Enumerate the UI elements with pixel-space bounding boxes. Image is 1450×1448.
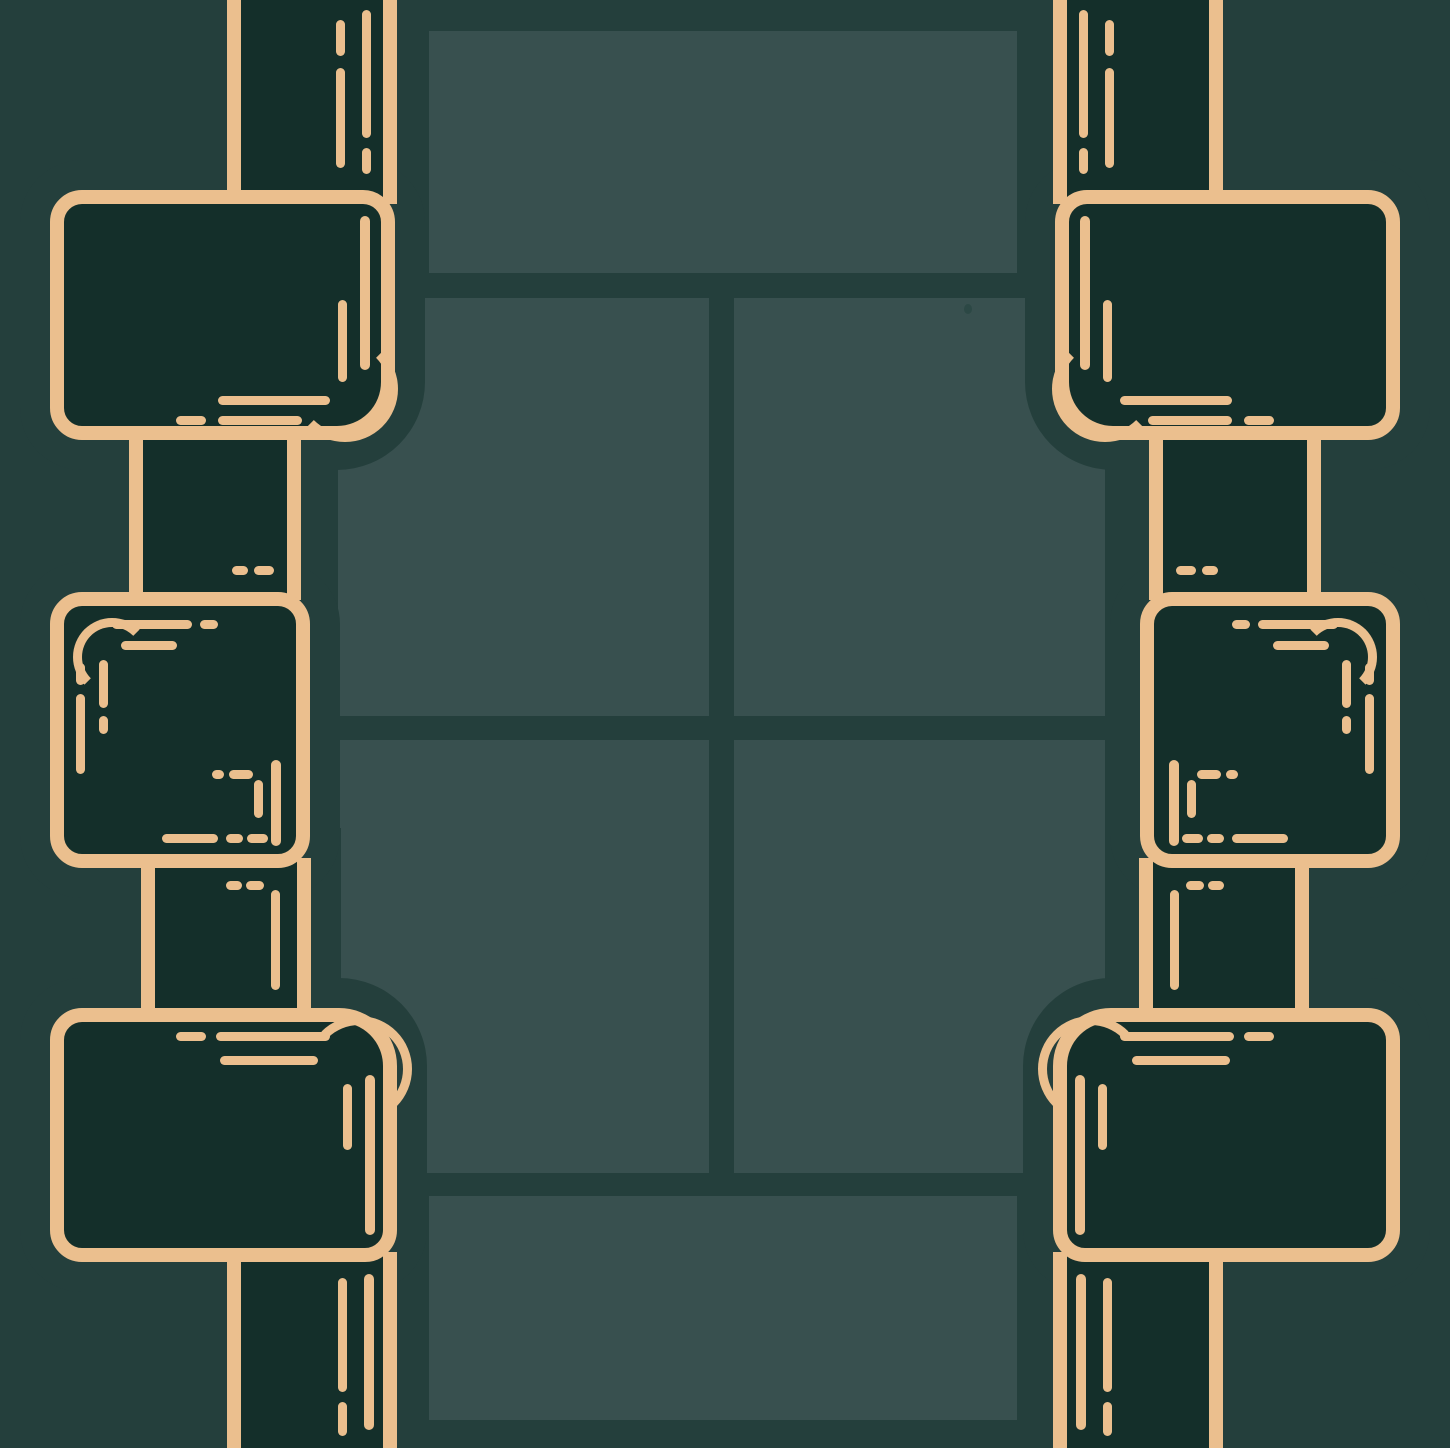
shine-dash xyxy=(1273,641,1329,650)
shine-dash xyxy=(1207,834,1224,843)
shine-dash xyxy=(1226,770,1238,779)
shine-dash xyxy=(1187,780,1196,818)
shine-dash xyxy=(99,716,108,734)
shine-dash xyxy=(338,1278,347,1392)
shine-dash xyxy=(226,834,243,843)
shine-dash xyxy=(365,1075,375,1235)
shine-dash xyxy=(176,1032,206,1041)
shine-dash xyxy=(1182,834,1203,843)
shine-dash xyxy=(1079,148,1088,174)
shine-dash xyxy=(216,1032,330,1041)
shine-dash xyxy=(1105,20,1114,56)
shine-dash xyxy=(1170,890,1179,990)
shine-dash xyxy=(176,416,206,425)
shine-dash xyxy=(1075,1075,1085,1235)
shine-dash xyxy=(246,881,264,890)
shine-arc xyxy=(73,618,151,696)
shine-dash xyxy=(336,68,345,168)
shine-dash xyxy=(1103,1278,1112,1392)
shine-dash xyxy=(229,770,253,779)
shine-dash xyxy=(1202,566,1218,575)
shine-dash xyxy=(1197,770,1221,779)
shine-dash xyxy=(1186,881,1204,890)
shine-dash xyxy=(1098,1084,1107,1150)
shine-dash xyxy=(362,10,371,138)
shine-dash xyxy=(1105,68,1114,168)
shine-dash xyxy=(362,148,371,174)
shine-arc xyxy=(1299,618,1377,696)
shine-dash xyxy=(212,770,224,779)
shine-dash xyxy=(76,663,85,685)
shine-arc xyxy=(1038,1016,1144,1122)
connector-strip-second xyxy=(129,430,301,600)
shine-dash xyxy=(1365,663,1374,685)
shine-dash xyxy=(218,416,302,425)
shine-arc xyxy=(1052,336,1158,442)
shine-dash xyxy=(1342,660,1351,708)
shine-dash xyxy=(112,620,192,629)
shine-dash xyxy=(1132,1056,1230,1065)
shine-dash xyxy=(1232,834,1288,843)
shine-dash xyxy=(1120,396,1232,405)
connector-strip-second xyxy=(1149,430,1321,600)
shine-dash xyxy=(1232,620,1250,629)
shine-dash xyxy=(220,1056,318,1065)
shine-dash xyxy=(1076,1274,1086,1430)
shine-dash xyxy=(1176,566,1196,575)
shine-dash xyxy=(336,20,345,56)
panel-top-banner xyxy=(429,31,1017,273)
shine-dash xyxy=(99,660,108,708)
shine-dash xyxy=(1103,1402,1112,1436)
shine-dash xyxy=(343,1084,352,1150)
shine-arc xyxy=(292,336,398,442)
left-ornament-column xyxy=(0,0,450,1448)
shine-dash xyxy=(247,834,268,843)
shine-dash xyxy=(1244,416,1274,425)
shine-dash xyxy=(1244,1032,1274,1041)
shine-dash xyxy=(254,566,274,575)
shine-dash xyxy=(1148,416,1232,425)
shine-dash xyxy=(162,834,218,843)
shine-dash xyxy=(1342,716,1351,734)
shine-dash xyxy=(76,694,85,774)
connector-strip-third xyxy=(1139,858,1309,1018)
shine-dash xyxy=(218,396,330,405)
shine-dash xyxy=(271,760,281,846)
panel-speck xyxy=(964,304,972,314)
panel-bottom-banner xyxy=(429,1196,1017,1420)
connector-strip-top xyxy=(227,0,397,204)
shine-dash xyxy=(338,1402,347,1436)
shine-dash xyxy=(232,566,248,575)
shine-arc xyxy=(306,1016,412,1122)
shine-dash xyxy=(1208,881,1224,890)
shine-dash xyxy=(1079,10,1088,138)
shine-dash xyxy=(271,890,280,990)
shine-dash xyxy=(1365,694,1374,774)
shine-dash xyxy=(1258,620,1338,629)
shine-dash xyxy=(1120,1032,1234,1041)
art-deco-game-background xyxy=(0,0,1450,1448)
shine-dash xyxy=(254,780,263,818)
shine-dash xyxy=(200,620,218,629)
shine-dash xyxy=(121,641,177,650)
shine-dash xyxy=(226,881,242,890)
shine-dash xyxy=(364,1274,374,1430)
shine-dash xyxy=(1169,760,1179,846)
right-ornament-column xyxy=(1000,0,1450,1448)
